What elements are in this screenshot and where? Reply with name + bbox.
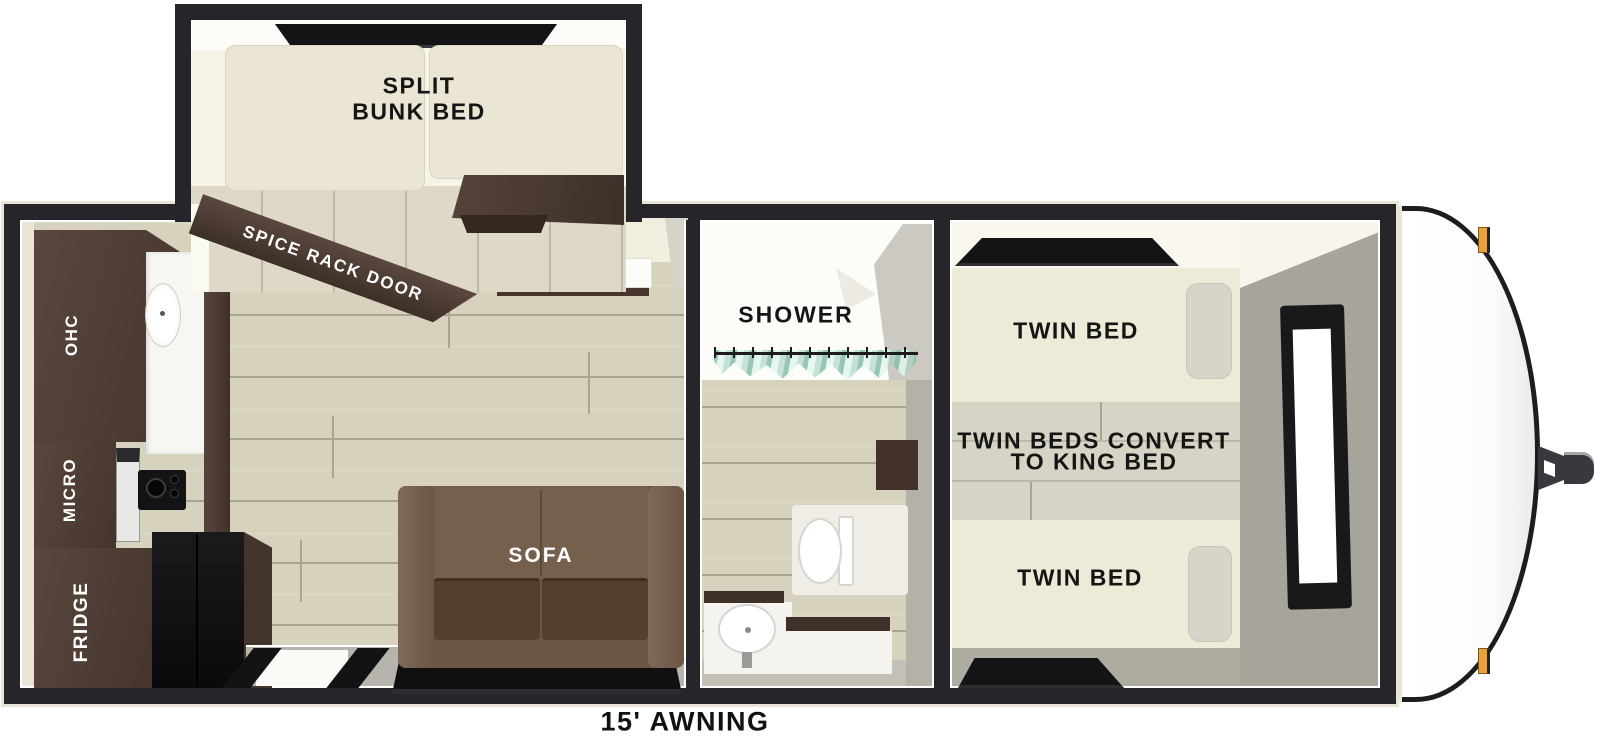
shower-label: SHOWER <box>738 302 854 329</box>
refrigerator <box>152 532 244 688</box>
floor-seam <box>332 416 334 478</box>
twin-bed-front-label: TWIN BED <box>1013 318 1139 345</box>
window-glass <box>1293 329 1338 584</box>
marker-light <box>1478 648 1490 674</box>
bunk-bed-label-line1: SPLIT <box>383 73 456 100</box>
sofa-arm <box>398 486 434 668</box>
vanity-counter <box>792 630 892 674</box>
pillow <box>1188 546 1232 642</box>
oven <box>116 448 140 542</box>
sofa-cushion <box>434 578 540 640</box>
bath-wall-face <box>906 378 932 686</box>
front-cap <box>1402 206 1540 702</box>
sofa-cushion <box>542 578 648 640</box>
sink-drain <box>745 627 751 633</box>
sofa <box>398 486 684 668</box>
fridge-cabinet <box>34 548 152 688</box>
sink-faucet <box>742 652 752 668</box>
pillow <box>1186 283 1232 379</box>
bunk-bed-label-line2: BUNK BED <box>352 99 485 126</box>
fridge-label: FRIDGE <box>71 582 93 663</box>
toilet <box>798 518 842 584</box>
floor-seam <box>588 352 590 414</box>
bedroom-left-wall <box>932 220 952 688</box>
bath-cabinet <box>876 440 918 490</box>
hitch-coupler <box>1564 452 1594 484</box>
sofa-label: SOFA <box>508 544 573 568</box>
stove-burner <box>170 489 179 498</box>
stove-burner <box>170 475 179 484</box>
marker-light <box>1478 227 1490 253</box>
kitchen-tall-cabinet <box>204 272 230 540</box>
stove-burner <box>146 478 166 498</box>
hitch <box>1538 444 1594 492</box>
vanity-backsplash <box>786 617 890 631</box>
rv-floorplan: OHC MICRO FRIDGE SOFA TV SPLIT BUNK BED … <box>0 0 1600 742</box>
awning-label: 15' AWNING <box>601 707 770 738</box>
bedroom-rear-window <box>958 658 1124 688</box>
curtain-hooks <box>714 347 918 358</box>
floor-seam <box>1030 482 1032 520</box>
vanity-backsplash <box>704 591 784 603</box>
twin-bed-rear-label: TWIN BED <box>1017 565 1143 592</box>
sink-drain <box>160 311 165 316</box>
floor-seam <box>300 540 302 602</box>
sofa-arm <box>648 486 684 668</box>
convert-label-line2: TO KING BED <box>1011 449 1178 476</box>
fridge-door-split <box>196 534 198 686</box>
bath-left-wall <box>684 220 702 688</box>
bedroom-front-window <box>955 238 1179 266</box>
bedroom-side-window <box>1280 304 1352 610</box>
microwave-label: MICRO <box>60 458 80 522</box>
kitchen-wall-face <box>22 222 34 686</box>
overhead-cabinet-label: OHC <box>62 314 82 356</box>
